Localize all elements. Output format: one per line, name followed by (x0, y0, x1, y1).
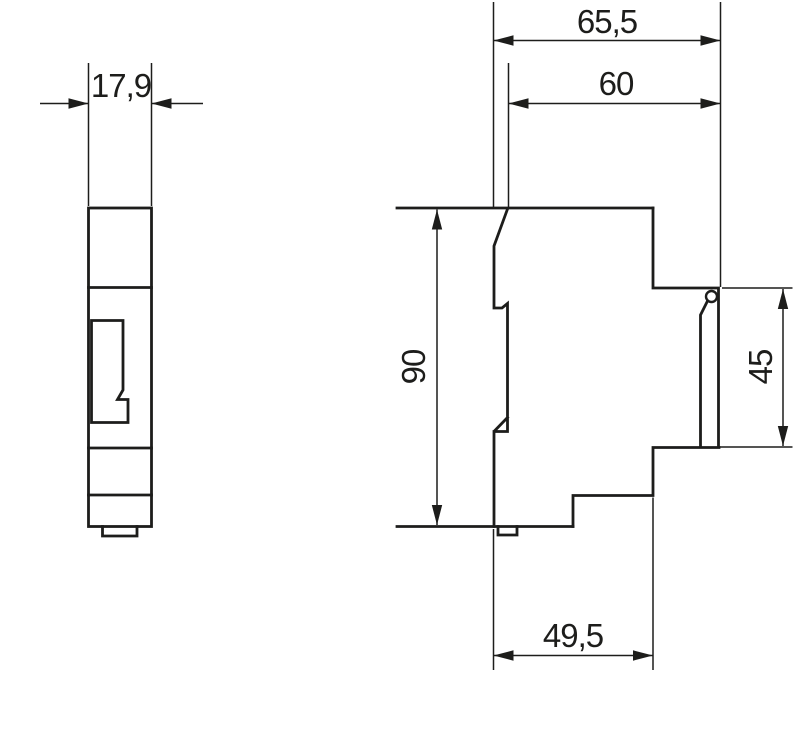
din-clip-pivot-circle (706, 291, 717, 302)
front-body-outline (89, 208, 152, 527)
rear-recess-arrow-bottom (778, 426, 788, 446)
front-clip-window (92, 321, 129, 423)
overall-depth-arrow-left (494, 35, 514, 45)
side-view: 65,5 60 90 45 4 (395, 2, 793, 670)
overall-depth-label: 65,5 (577, 3, 637, 40)
dimension-drawing-canvas: 17,9 65,5 60 90 (0, 0, 800, 736)
dimension-drawing: 17,9 65,5 60 90 (0, 0, 800, 736)
lower-depth-arrow-right (633, 650, 653, 660)
din-clip-lever (701, 302, 708, 446)
front-width-arrow-left (69, 98, 89, 108)
side-bottom-steps (573, 448, 719, 527)
depth60-label: 60 (599, 65, 634, 102)
overall-depth-arrow-right (701, 35, 721, 45)
height-arrow-top (432, 210, 442, 230)
rear-recess-label: 45 (742, 350, 779, 385)
front-foot-tab (103, 527, 138, 537)
side-rear-profile (653, 208, 719, 447)
lower-depth-label: 49,5 (543, 617, 603, 654)
side-front-profile (494, 209, 508, 527)
height-arrow-bottom (432, 505, 442, 525)
front-width-arrow-right (152, 98, 172, 108)
depth60-arrow-right (701, 98, 721, 108)
height-label: 90 (395, 349, 432, 384)
rear-recess-arrow-top (778, 289, 788, 309)
depth60-arrow-left (509, 98, 529, 108)
lower-depth-arrow-left (494, 650, 514, 660)
front-view: 17,9 (40, 63, 203, 536)
front-width-label: 17,9 (91, 67, 151, 104)
